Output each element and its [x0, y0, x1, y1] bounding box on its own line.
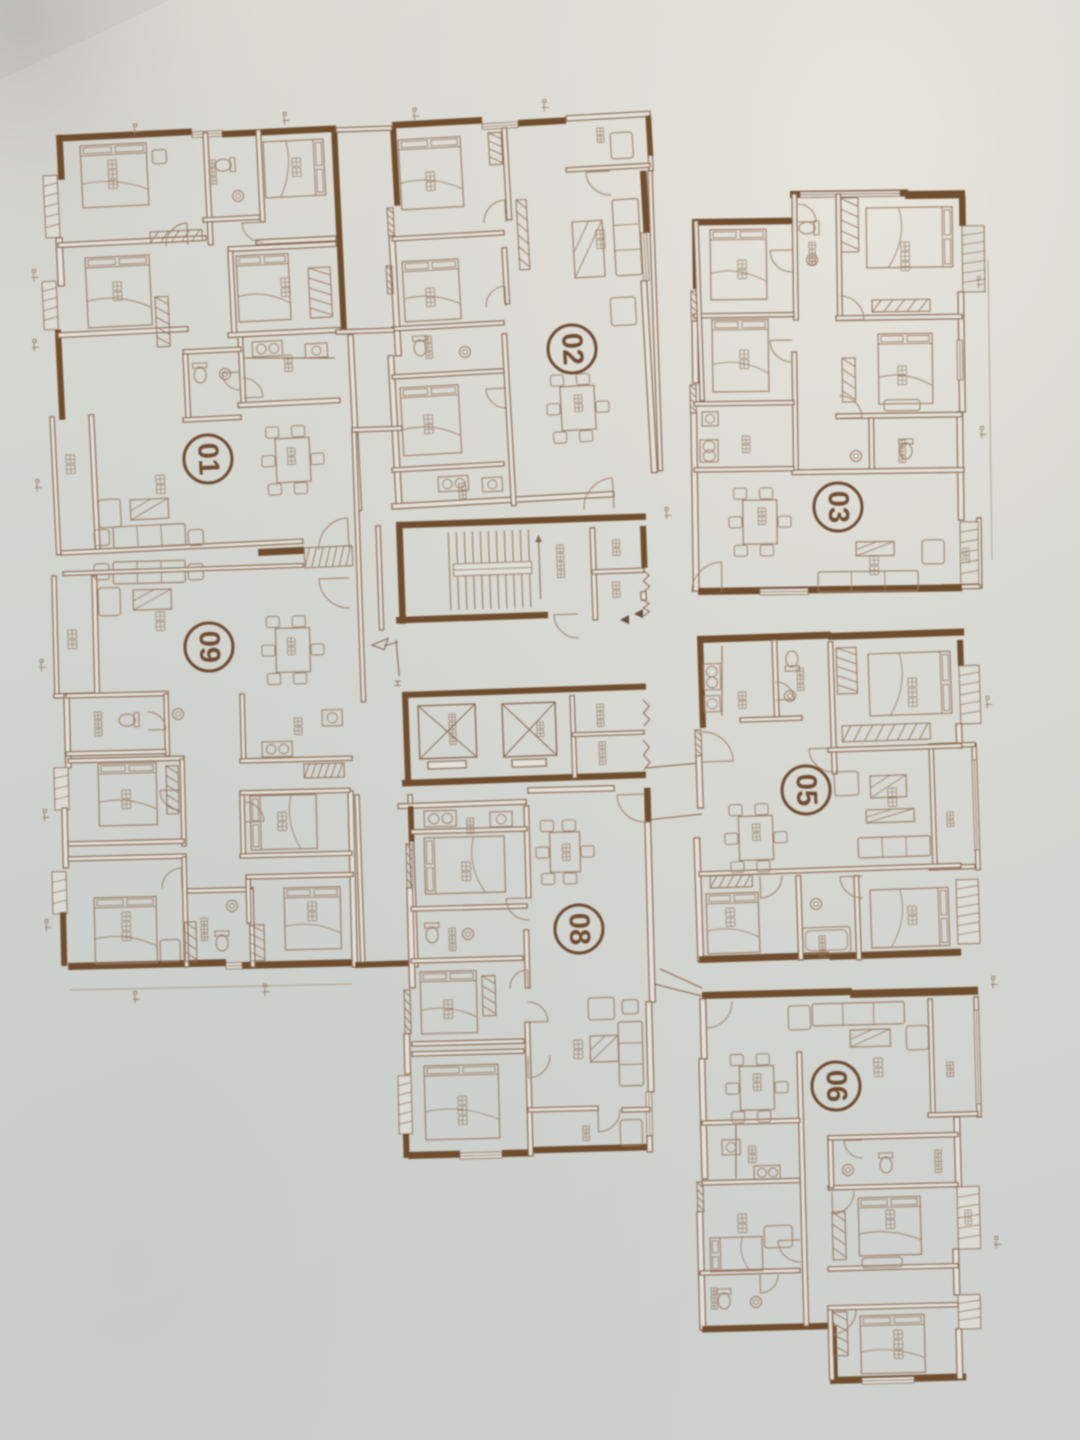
svg-text:09: 09	[193, 630, 226, 663]
svg-text:01: 01	[191, 442, 225, 476]
svg-text:03: 03	[822, 491, 854, 524]
svg-text:05: 05	[790, 773, 823, 806]
svg-text:H: H	[392, 680, 402, 687]
svg-text:02: 02	[555, 332, 589, 366]
svg-text:06: 06	[820, 1069, 853, 1102]
svg-text:08: 08	[563, 912, 596, 945]
